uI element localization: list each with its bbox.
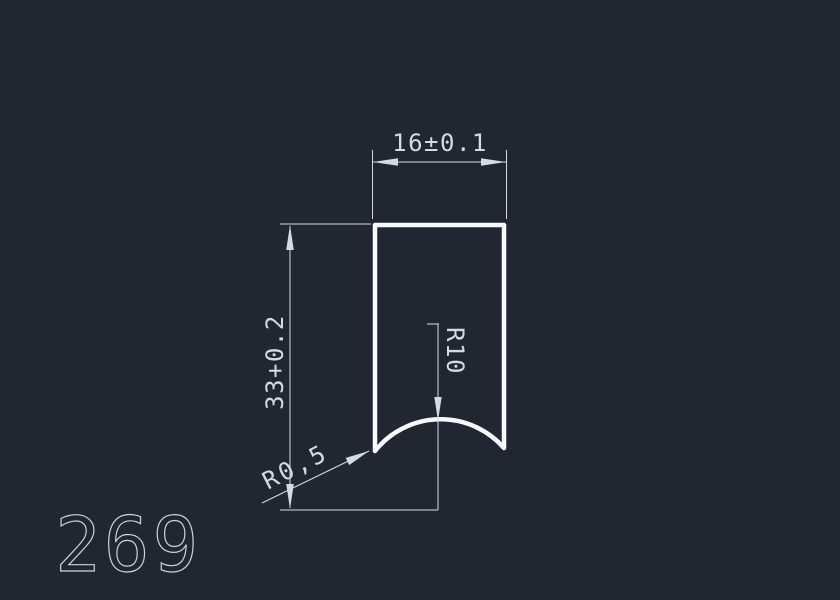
drawing-number[interactable]: 269 [55, 500, 201, 589]
r10-radius-text[interactable]: R10 [441, 327, 469, 375]
cad-canvas[interactable]: 16±0.1 33+0.2 R10 R0,5 269 [0, 0, 840, 600]
cad-viewport[interactable]: 16±0.1 33+0.2 R10 R0,5 269 [0, 0, 840, 600]
width-dimension-text[interactable]: 16±0.1 [392, 129, 488, 157]
height-dimension-text[interactable]: 33+0.2 [261, 314, 289, 410]
